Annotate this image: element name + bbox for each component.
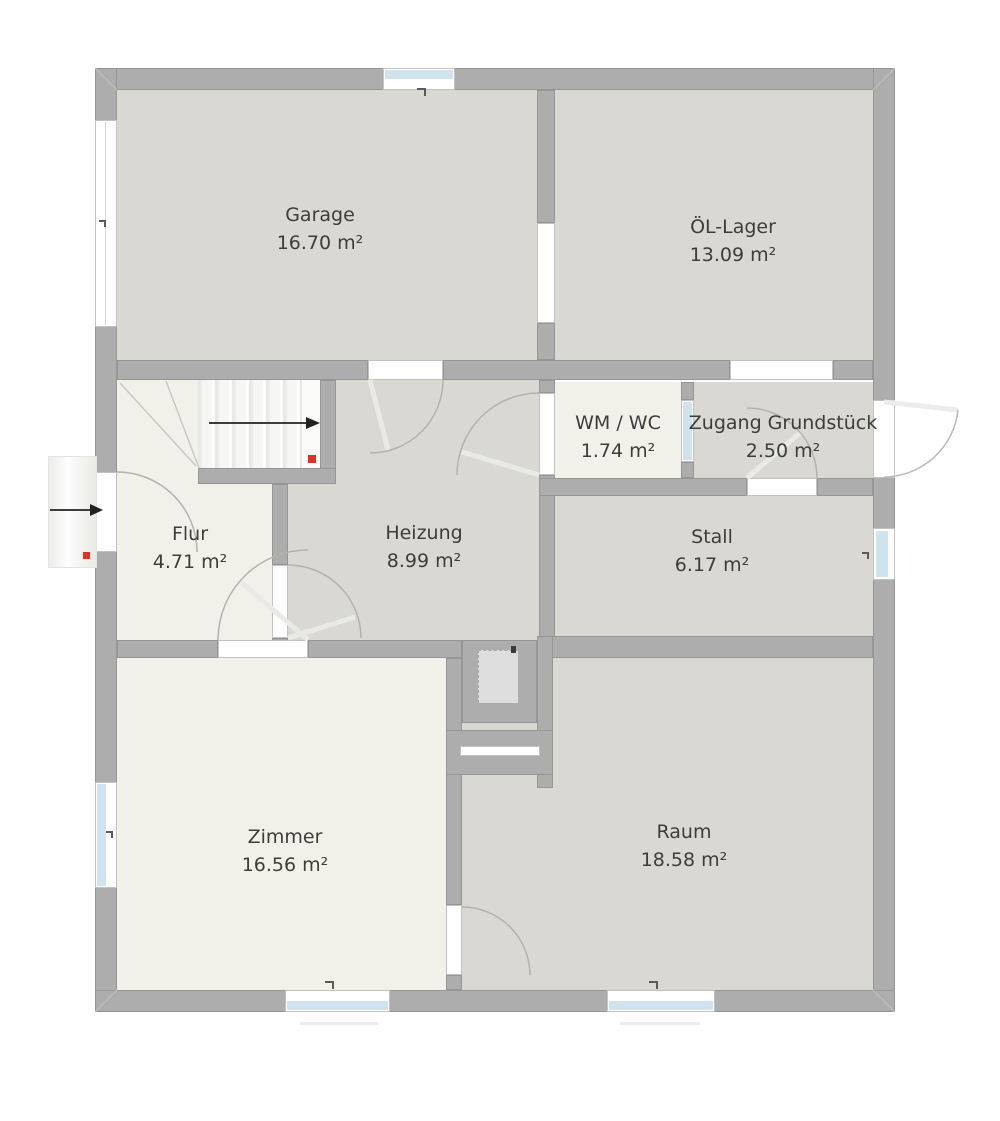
room-name: WM / WC (575, 409, 661, 437)
door-zugang-stall (747, 478, 817, 496)
room-name: ÖL-Lager (690, 213, 777, 241)
wall-wmwc-stall (539, 478, 747, 496)
stair-red-marker (308, 455, 316, 463)
door-arc-zugang-exterior (884, 410, 958, 477)
wall-mid-band (117, 360, 368, 380)
chimney-lower-slot (460, 746, 540, 756)
window-raum-bottom-glass (609, 1001, 713, 1010)
wall-heizung-bottom (308, 640, 462, 658)
wall-stair-bottom (198, 468, 336, 484)
wall-mid-band (443, 360, 730, 380)
room-area: 6.17 m² (675, 551, 749, 579)
door-heizung-wmwc (539, 393, 555, 475)
window-shadow (300, 1022, 378, 1025)
room-area: 16.56 m² (242, 851, 329, 879)
room-label-flur: Flur 4.71 m² (153, 520, 227, 576)
room-name: Garage (277, 201, 364, 229)
door-zimmer-raum (446, 905, 462, 975)
entrance-door (95, 472, 117, 552)
window-handle (862, 552, 869, 559)
wall-wmwc-zugang (681, 382, 694, 400)
room-name: Heizung (385, 519, 462, 547)
room-area: 16.70 m² (277, 229, 364, 257)
window-zimmer-bottom-glass (287, 1001, 388, 1010)
chimney-shaft (478, 650, 518, 703)
room-label-wm-wc: WM / WC 1.74 m² (575, 409, 661, 465)
room-name: Flur (153, 520, 227, 548)
window-handle (649, 981, 658, 989)
window-garage-top-glass (385, 70, 453, 79)
room-area: 13.09 m² (690, 241, 777, 269)
wall-flur-bottom (117, 640, 218, 658)
wall-exterior-bottom (95, 990, 895, 1012)
window-handle (417, 88, 426, 96)
door-flur-zimmer (218, 640, 308, 658)
room-label-garage: Garage 16.70 m² (277, 201, 364, 257)
wall-stall-bottom (539, 636, 873, 658)
door-garage-heizung (368, 360, 443, 380)
room-label-heizung: Heizung 8.99 m² (385, 519, 462, 575)
room-label-oel-lager: ÖL-Lager 13.09 m² (690, 213, 777, 269)
room-label-stall: Stall 6.17 m² (675, 523, 749, 579)
wall-mid-band (833, 360, 873, 380)
window-handle (106, 831, 113, 838)
window-shadow (620, 1022, 700, 1025)
entry-red-marker (83, 552, 90, 559)
wall-heizung-right (539, 380, 555, 393)
wall-exterior-top (95, 68, 895, 90)
door-flur-heizung (272, 565, 288, 638)
wall-garage-oel (537, 323, 555, 360)
wall-garage-oel (537, 90, 555, 223)
opening-garage-oel (537, 223, 555, 323)
room-name: Raum (641, 818, 728, 846)
window-oel-zugang (730, 360, 833, 380)
room-area: 8.99 m² (385, 547, 462, 575)
room-area: 1.74 m² (575, 437, 661, 465)
wall-zugang-stall (817, 478, 873, 496)
room-area: 2.50 m² (689, 437, 877, 465)
wall-heizung-right (539, 475, 555, 658)
window-zimmer-left-glass (97, 784, 106, 886)
window-handle (325, 981, 334, 989)
room-label-zimmer: Zimmer 16.56 m² (242, 823, 329, 879)
room-label-zugang: Zugang Grundstück 2.50 m² (689, 409, 877, 465)
room-area: 18.58 m² (641, 846, 728, 874)
window-stall-right-glass (876, 531, 888, 577)
window-handle (99, 220, 106, 227)
room-label-raum: Raum 18.58 m² (641, 818, 728, 874)
room-area: 4.71 m² (153, 548, 227, 576)
wall-zimmer-raum (446, 975, 462, 990)
room-name: Stall (675, 523, 749, 551)
room-name: Zugang Grundstück (689, 409, 877, 437)
room-name: Zimmer (242, 823, 329, 851)
wall-zimmer-raum (446, 658, 462, 905)
wall-flur-heizung (272, 484, 288, 565)
floor-plan: Garage 16.70 m² ÖL-Lager 13.09 m² WM / W… (0, 0, 1000, 1121)
door-panel (884, 402, 958, 410)
chimney-shaft-tick (511, 646, 516, 653)
